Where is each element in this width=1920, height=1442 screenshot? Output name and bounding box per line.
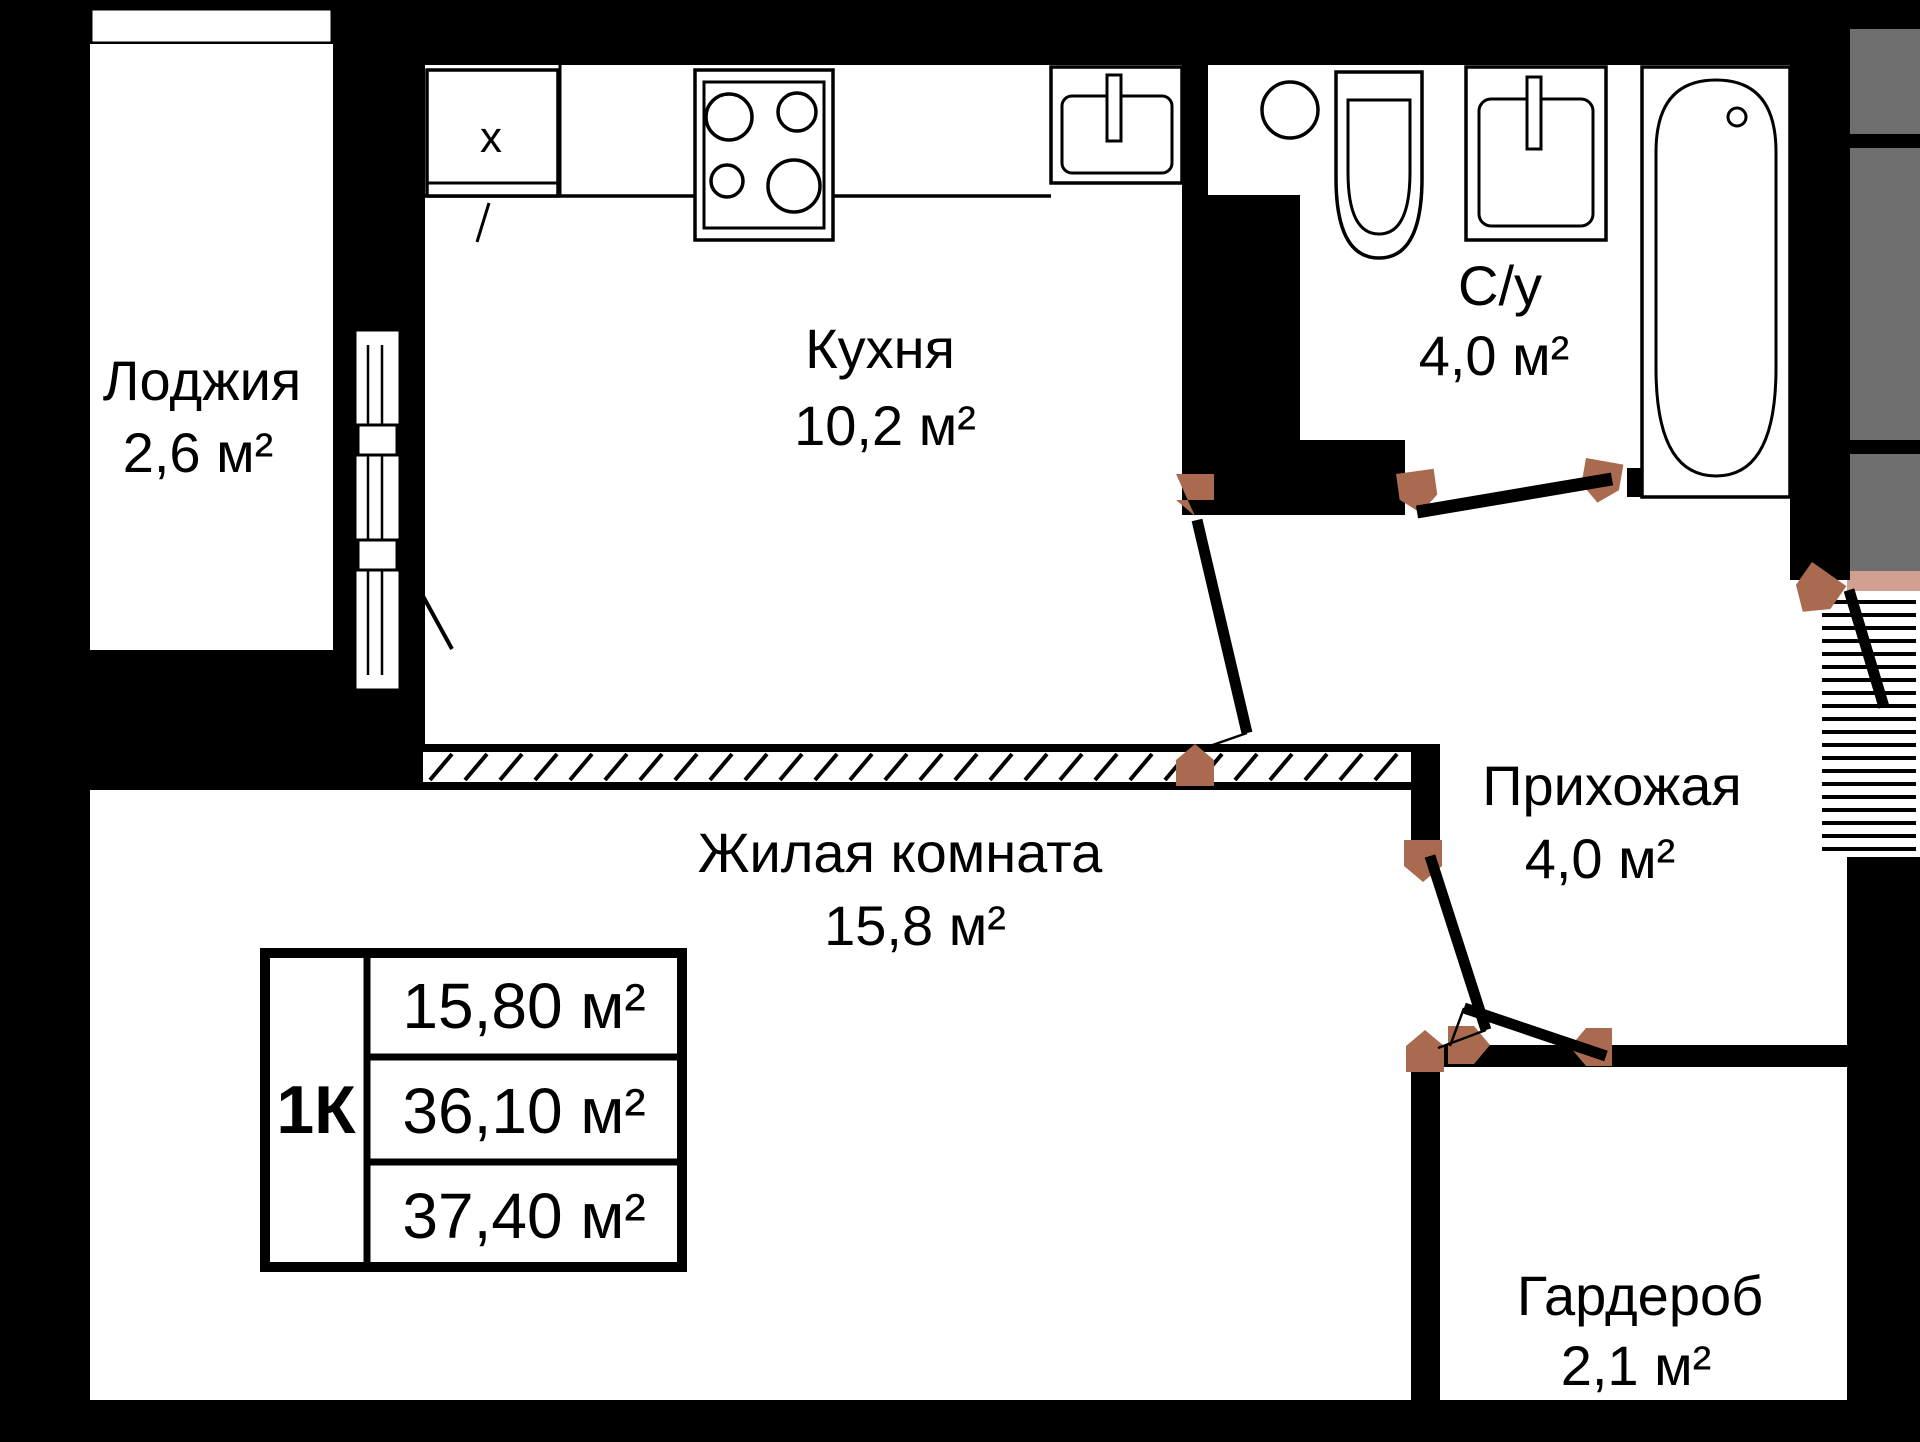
kitchen-sink-icon bbox=[1051, 67, 1182, 183]
label-wardrobe-area: 2,1 м² bbox=[1561, 1334, 1712, 1397]
label-cabinet-mark: х bbox=[480, 113, 502, 162]
stairs-area bbox=[1818, 591, 1920, 857]
total-area-value: 37,40 м² bbox=[402, 1180, 645, 1252]
toilet-icon bbox=[1336, 72, 1422, 258]
neighbor-gray-panels bbox=[1850, 29, 1920, 577]
threshold-strip bbox=[1847, 571, 1920, 591]
living-area-value: 15,80 м² bbox=[402, 970, 645, 1042]
room-floor-hallway-nook bbox=[1182, 515, 1411, 744]
label-loggia-area: 2,6 м² bbox=[123, 421, 274, 484]
gray-panel-divider-2 bbox=[1850, 440, 1920, 454]
label-bathroom-area: 4,0 м² bbox=[1419, 324, 1570, 387]
bathtub-icon bbox=[1642, 67, 1790, 497]
room-floor-loggia bbox=[90, 44, 333, 650]
label-hallway-area: 4,0 м² bbox=[1525, 827, 1676, 890]
apartment-type: 1К bbox=[276, 1072, 356, 1148]
label-living-name: Жилая комната bbox=[698, 821, 1103, 884]
label-hallway-name: Прихожая bbox=[1482, 754, 1742, 817]
apartment-area-value: 36,10 м² bbox=[402, 1075, 645, 1147]
gray-panel-divider-1 bbox=[1850, 134, 1920, 148]
loggia-window-band bbox=[90, 8, 333, 44]
wall-living-hallway-lower bbox=[1411, 1066, 1440, 1400]
label-kitchen-area: 10,2 м² bbox=[794, 394, 976, 457]
apartment-info-table: 1К 15,80 м² 36,10 м² 37,40 м² bbox=[265, 953, 682, 1267]
stove-icon bbox=[695, 70, 833, 240]
label-wardrobe-name: Гардероб bbox=[1517, 1264, 1763, 1327]
label-bathroom-name: С/у bbox=[1458, 254, 1542, 317]
wall-wardrobe-top-right bbox=[1605, 1045, 1847, 1067]
wall-bathroom-right bbox=[1790, 65, 1850, 580]
washbasin-icon bbox=[1262, 82, 1318, 138]
bathroom-sink-icon bbox=[1466, 67, 1606, 240]
label-loggia-name: Лоджия bbox=[103, 349, 301, 412]
label-living-area: 15,8 м² bbox=[824, 894, 1006, 957]
label-kitchen-name: Кухня bbox=[805, 317, 955, 380]
floor-plan: 1К 15,80 м² 36,10 м² 37,40 м² Лоджия 2,6… bbox=[0, 0, 1920, 1442]
partition-hatched-wall bbox=[423, 744, 1411, 790]
